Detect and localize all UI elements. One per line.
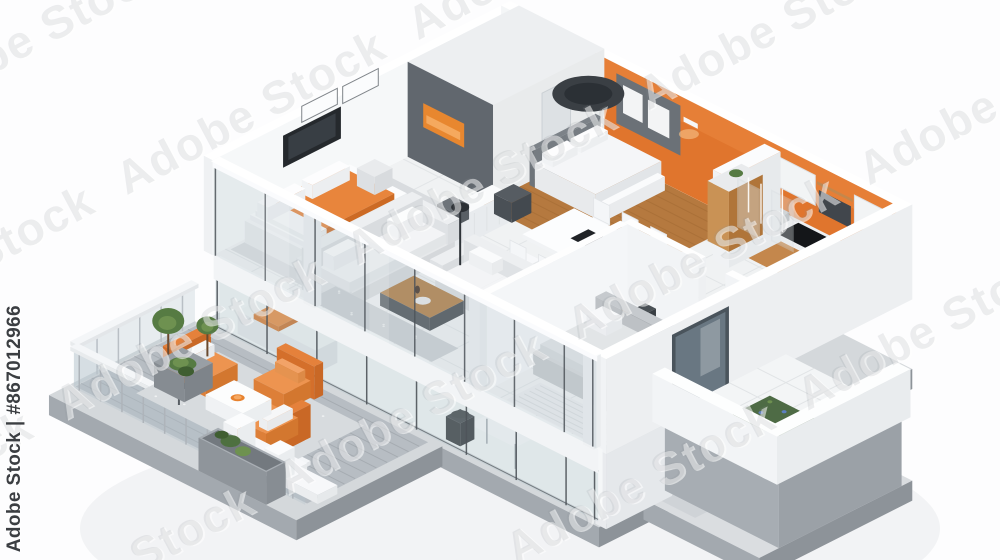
svg-text:Adobe Stock: Adobe Stock [628, 0, 915, 120]
svg-text:Adobe Stock: Adobe Stock [0, 0, 173, 129]
watermark-id-label: Adobe Stock | #867012966 [4, 305, 26, 552]
apartment-3d-render: Adobe StockAdobe StockAdobe StockAdobe S… [0, 0, 1000, 560]
floorplan-render [49, 1, 940, 560]
svg-text:Adobe Stock: Adobe Stock [849, 9, 1000, 195]
stock-image-canvas: Adobe StockAdobe StockAdobe StockAdobe S… [0, 0, 1000, 560]
